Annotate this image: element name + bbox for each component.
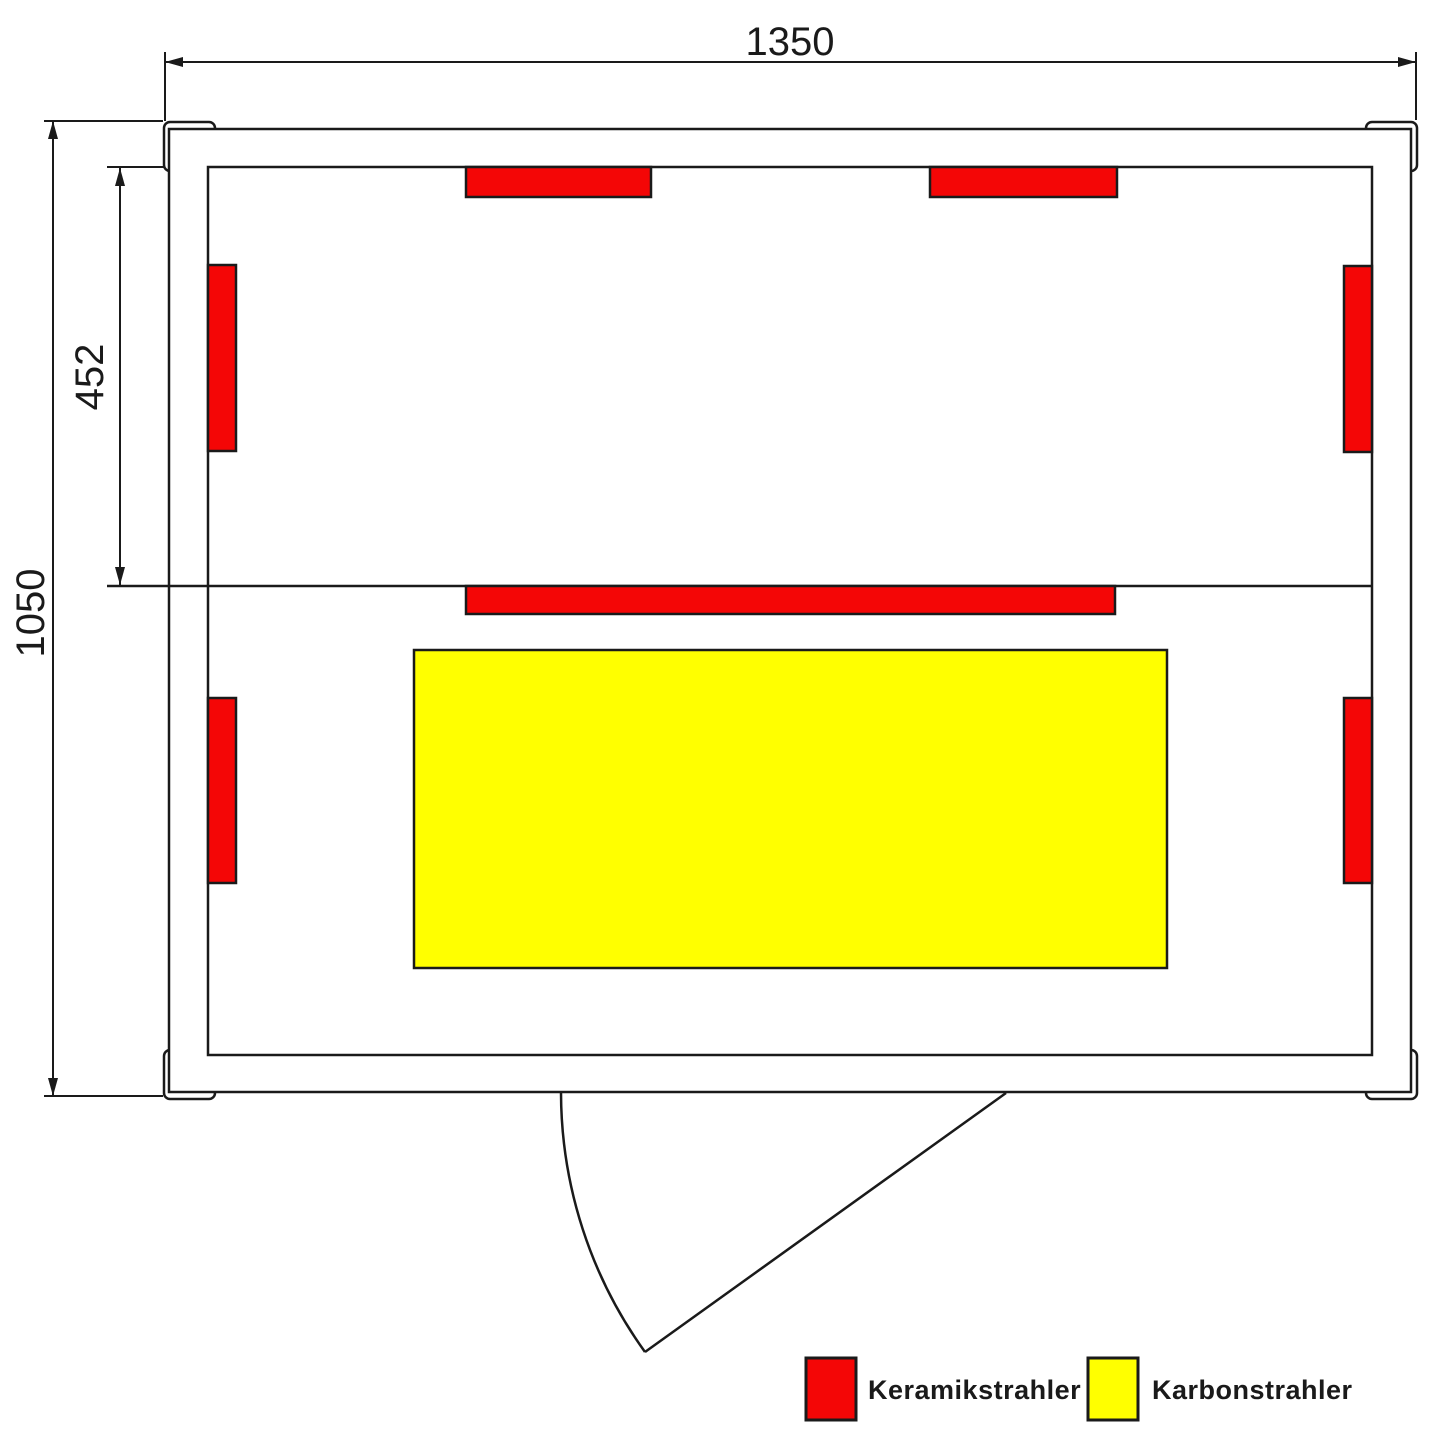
dimension-bench-label: 452	[68, 344, 112, 411]
arrow-down-icon	[48, 1078, 58, 1096]
dimension-width-label: 1350	[746, 20, 835, 64]
legend-item-karbonstrahler: Karbonstrahler	[1088, 1358, 1353, 1420]
legend: Keramikstrahler Karbonstrahler	[806, 1358, 1353, 1420]
heater-ceramic-right-upper	[1344, 266, 1372, 452]
heater-ceramic-right-lower	[1344, 698, 1372, 883]
door-swing-arc	[561, 1093, 645, 1352]
dimension-width: 1350	[165, 20, 1416, 121]
sauna-floor-plan: 1350 1050 452	[0, 0, 1445, 1445]
legend-swatch-keramikstrahler	[806, 1358, 856, 1420]
door-leaf-line	[645, 1093, 1006, 1352]
heater-ceramic-left-lower	[208, 698, 236, 883]
door	[561, 1093, 1006, 1352]
arrow-up-icon	[48, 121, 58, 139]
heater-ceramic-top-left	[466, 167, 651, 197]
legend-swatch-karbonstrahler	[1088, 1358, 1138, 1420]
dimension-height: 1050	[9, 121, 163, 1096]
arrow-left-icon	[165, 57, 183, 67]
arrow-right-icon	[1398, 57, 1416, 67]
heater-ceramic-left-upper	[208, 265, 236, 451]
heater-ceramic-bench-front	[466, 586, 1115, 614]
heater-ceramic-top-right	[930, 167, 1117, 197]
legend-label-karbonstrahler: Karbonstrahler	[1152, 1375, 1353, 1405]
sauna-floor-plan-page: 1350 1050 452	[0, 0, 1445, 1445]
legend-label-keramikstrahler: Keramikstrahler	[868, 1375, 1081, 1405]
arrow-up-icon	[115, 168, 125, 186]
heater-carbon-bench	[414, 650, 1167, 968]
legend-item-keramikstrahler: Keramikstrahler	[806, 1358, 1081, 1420]
arrow-down-icon	[115, 567, 125, 585]
dimension-height-label: 1050	[9, 569, 53, 658]
